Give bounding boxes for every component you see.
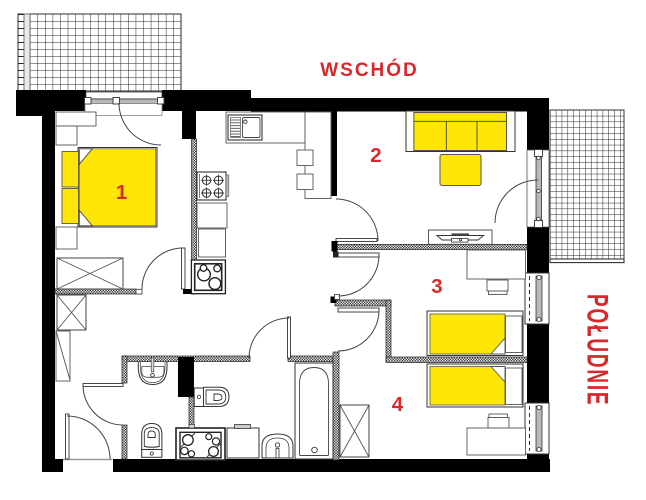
svg-text:1: 1 bbox=[116, 181, 127, 204]
svg-text:WSCHÓD: WSCHÓD bbox=[320, 59, 419, 81]
svg-text:4: 4 bbox=[392, 393, 404, 416]
svg-text:3: 3 bbox=[431, 275, 442, 298]
svg-text:2: 2 bbox=[370, 144, 381, 167]
svg-text:POŁUDNIE: POŁUDNIE bbox=[580, 294, 612, 406]
